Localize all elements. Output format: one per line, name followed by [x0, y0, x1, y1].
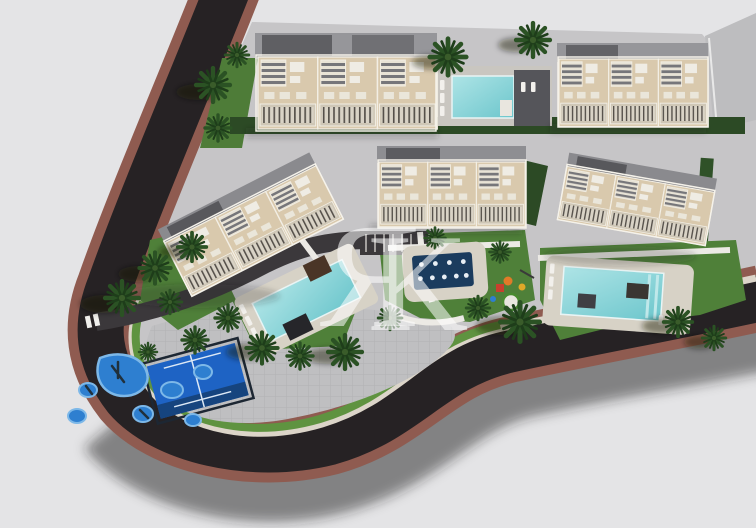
building-1	[255, 33, 437, 131]
watermark-logo: R K	[320, 193, 469, 361]
watermark-letter-k: K	[367, 206, 468, 361]
pool-right-pergola	[626, 283, 649, 299]
building-2	[557, 43, 708, 127]
pool-top-deck	[514, 70, 550, 126]
pool-top	[438, 66, 552, 126]
render-canvas: R K	[0, 0, 756, 528]
site-plan-render: R K	[0, 0, 756, 528]
